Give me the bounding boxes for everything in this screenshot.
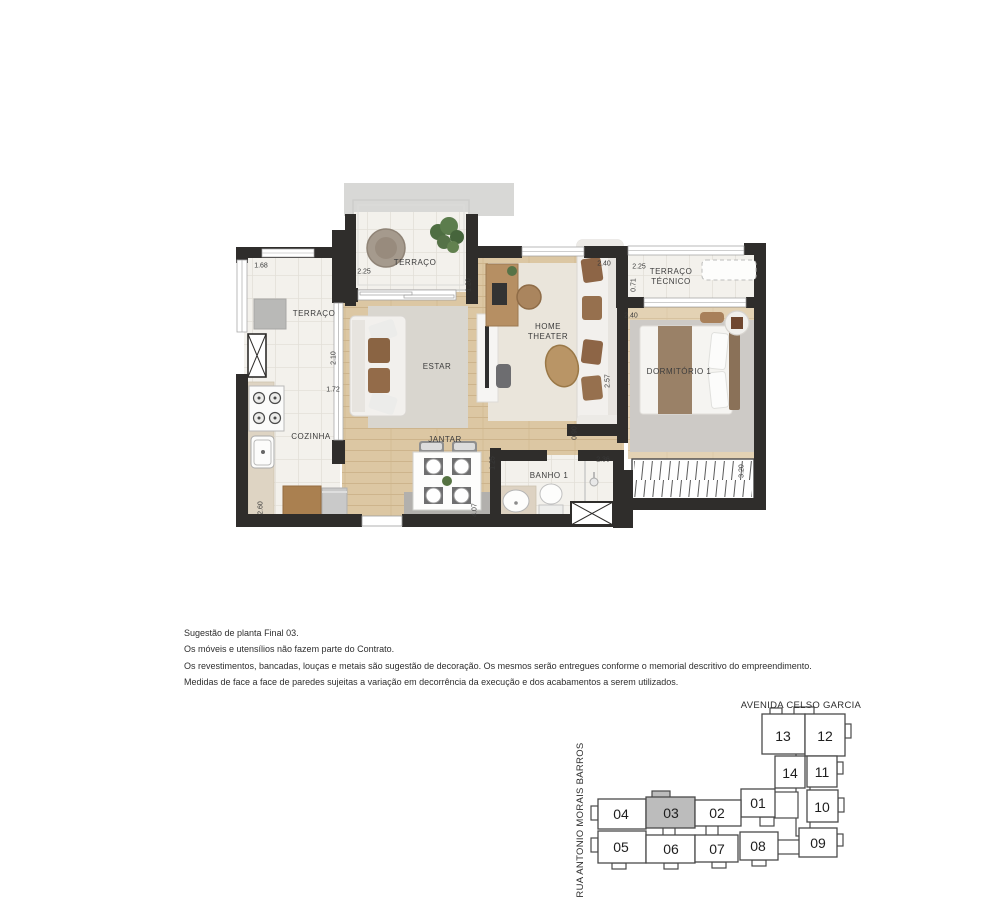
keyplan-unit-01-label: 01 bbox=[750, 795, 766, 811]
disclaimer-line: Os móveis e utensílios não fazem parte d… bbox=[184, 641, 874, 657]
street-label-rua-antonio-morais-barros: RUA ANTONIO MORAIS BARROS bbox=[575, 742, 586, 897]
floor-plan-graphic bbox=[225, 175, 780, 547]
living-sofa bbox=[350, 316, 406, 416]
terrace-mat bbox=[254, 299, 286, 329]
disclaimer-block: Sugestão de planta Final 03. Os móveis e… bbox=[184, 625, 874, 691]
keyplan-unit-12-label: 12 bbox=[817, 728, 833, 744]
keyplan-unit-07-label: 07 bbox=[709, 841, 725, 857]
keyplan-unit-10-label: 10 bbox=[814, 799, 830, 815]
stove bbox=[249, 386, 284, 431]
brochure-page: TERRAÇO TERRAÇO ESTAR HOME THEATER TERRA… bbox=[0, 0, 1000, 923]
kitchen-sink bbox=[251, 436, 274, 468]
terrace-armchair bbox=[367, 229, 405, 267]
floor-plan: TERRAÇO TERRAÇO ESTAR HOME THEATER TERRA… bbox=[225, 175, 780, 547]
keyplan-unit-03-label: 03 bbox=[663, 805, 679, 821]
keyplan-graphic: 01 02 03 04 05 06 07 08 09 10 11 12 13 1… bbox=[560, 690, 1000, 905]
keyplan-unit-04-label: 04 bbox=[613, 806, 629, 822]
keyplan-unit-06-label: 06 bbox=[663, 841, 679, 857]
keyplan-unit-09-label: 09 bbox=[810, 835, 826, 851]
keyplan-unit-11-label: 11 bbox=[815, 764, 830, 780]
disclaimer-line: Medidas de face a face de paredes sujeit… bbox=[184, 674, 874, 690]
keyplan: 01 02 03 04 05 06 07 08 09 10 11 12 13 1… bbox=[560, 690, 1000, 905]
shaft-box bbox=[571, 502, 613, 525]
louver-strip bbox=[632, 459, 754, 499]
bed bbox=[640, 326, 740, 414]
keyplan-unit-14-label: 14 bbox=[782, 765, 798, 781]
disclaimer-line: Os revestimentos, bancadas, louças e met… bbox=[184, 658, 874, 674]
disclaimer-line: Sugestão de planta Final 03. bbox=[184, 625, 874, 641]
keyplan-unit-05-label: 05 bbox=[613, 839, 629, 855]
keyplan-unit-02-label: 02 bbox=[709, 805, 725, 821]
keyplan-unit-08-label: 08 bbox=[750, 838, 766, 854]
keyplan-unit-13-label: 13 bbox=[775, 728, 791, 744]
street-label-avenida-celso-garcia: AVENIDA CELSO GARCIA bbox=[741, 700, 862, 711]
